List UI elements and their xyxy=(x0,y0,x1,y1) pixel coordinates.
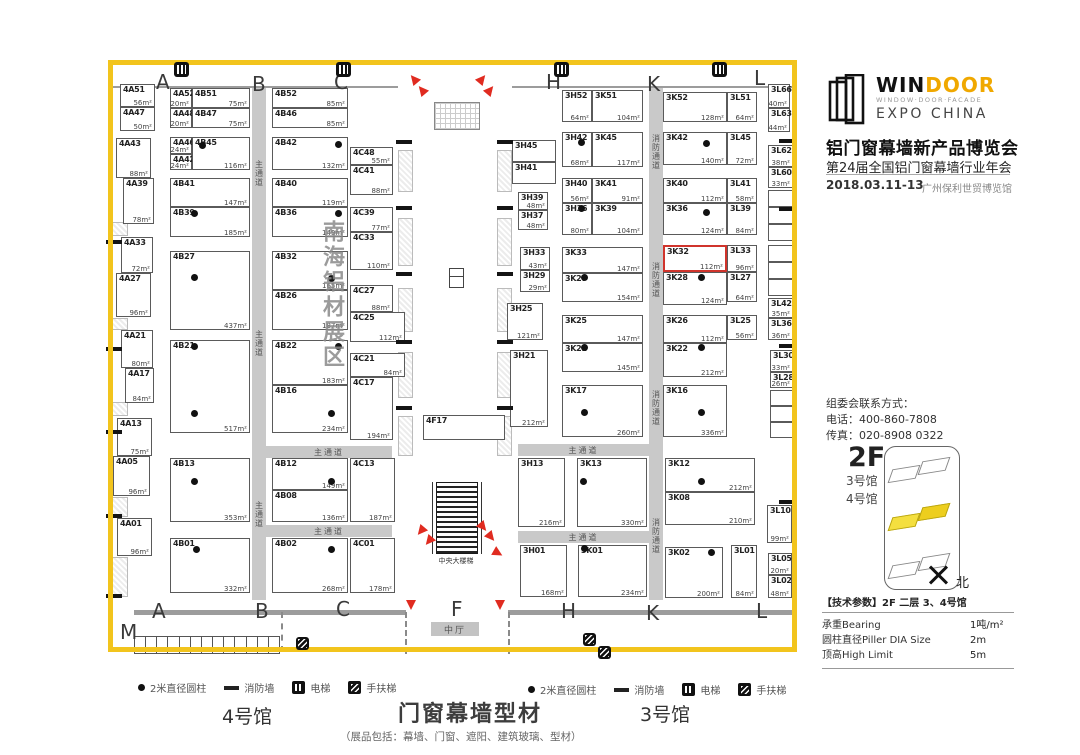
booth-4F17[interactable]: 4F17 xyxy=(423,415,505,440)
booth-area-label: 56m² xyxy=(735,332,754,340)
booth-3H21[interactable]: 3H21212m² xyxy=(510,350,548,427)
booth-3L02[interactable]: 3L0248m² xyxy=(768,575,792,598)
booth-id-label: 4A33 xyxy=(124,238,146,247)
column-letter-A: A xyxy=(152,599,166,623)
booth-4A43[interactable]: 4A4388m² xyxy=(116,138,151,178)
booth-id-label: 3L01 xyxy=(734,546,755,555)
escalator-icon xyxy=(296,637,309,650)
booth-area-label: 91m² xyxy=(621,195,640,203)
column-dot-icon xyxy=(328,546,335,553)
column-dot-icon xyxy=(703,140,710,147)
tech-param-name: 圆柱直径Piller DIA Size xyxy=(822,633,970,648)
small-stall[interactable] xyxy=(180,637,191,653)
booth-4B51[interactable]: 4B5175m² xyxy=(192,88,250,108)
booth-area-label: 84m² xyxy=(735,590,754,598)
booth-4C33[interactable]: 4C33110m² xyxy=(350,232,393,270)
booth-4B39[interactable]: 4B39185m² xyxy=(170,207,250,237)
booth-id-label: 4B47 xyxy=(195,109,217,118)
booth-3K52[interactable]: 3K52128m² xyxy=(663,92,727,122)
booth-4A48[interactable]: 4A4820m² xyxy=(170,108,192,128)
column-letter-L: L xyxy=(756,599,767,623)
booth-id-label: 4B16 xyxy=(275,386,297,395)
booth-area-label: 96m² xyxy=(129,309,148,317)
column-dot-icon xyxy=(191,343,198,350)
booth-3K13[interactable]: 3K13330m² xyxy=(577,458,647,527)
booth-3H01[interactable]: 3H01168m² xyxy=(520,545,567,597)
elevator-icon xyxy=(554,62,569,77)
booth-4C01[interactable]: 4C01178m² xyxy=(350,538,395,593)
legend-right: 2米直径圆柱消防墙电梯手扶梯 xyxy=(528,682,786,697)
booth-area-label: 84m² xyxy=(383,369,402,377)
booth-id-label: 3K33 xyxy=(565,248,587,257)
booth-id-label: 3L27 xyxy=(730,273,751,282)
booth-3H36[interactable]: 3H3680m² xyxy=(562,203,592,235)
booth-3L45[interactable]: 3L4572m² xyxy=(727,132,757,165)
expo-venue: 广州保利世贸博览馆 xyxy=(922,180,1012,195)
booth-area-label: 84m² xyxy=(132,395,151,403)
booth-4B26[interactable]: 4B26187m² xyxy=(272,290,348,330)
logo-tagline: WINDOW·DOOR·FACADE xyxy=(876,96,995,104)
booth-area-label: 121m² xyxy=(517,332,540,340)
booth-area-label: 104m² xyxy=(617,227,640,235)
booth-3H29[interactable]: 3H2929m² xyxy=(520,270,550,292)
small-stall[interactable] xyxy=(269,637,279,653)
service-shaft xyxy=(110,318,128,330)
booth-id-label: 4C41 xyxy=(353,166,374,175)
booth-3H42[interactable]: 3H4268m² xyxy=(562,132,592,167)
floor-hall4-label: 4号馆 xyxy=(846,490,878,507)
tech-param-row: 圆柱直径Piller DIA Size2m xyxy=(822,633,1014,648)
booth-3L41[interactable]: 3L4158m² xyxy=(727,178,757,203)
booth-3K36[interactable]: 3K36124m² xyxy=(663,203,727,235)
aisle-label: 消防通道 xyxy=(651,518,662,554)
tech-param-value: 1吨/m² xyxy=(970,618,1014,633)
booth-4A47[interactable]: 4A4750m² xyxy=(120,107,155,131)
booth-4A39[interactable]: 4A3978m² xyxy=(123,178,154,224)
booth-id-label: 3K08 xyxy=(668,493,690,502)
booth-small[interactable] xyxy=(770,390,793,406)
booth-4B12[interactable]: 4B12149m² xyxy=(272,458,348,490)
booth-area-label: 68m² xyxy=(570,159,589,167)
booth-area-label: 40m² xyxy=(768,100,787,108)
booth-id-label: 4C25 xyxy=(353,313,374,322)
booth-4A13[interactable]: 4A1375m² xyxy=(117,418,152,456)
legend-item: 电梯 xyxy=(682,682,720,697)
booth-3L63[interactable]: 3L6344m² xyxy=(768,108,790,132)
booth-3H37[interactable]: 3H3748m² xyxy=(518,210,548,230)
booth-id-label: 4B27 xyxy=(173,252,195,261)
booth-id-label: 4C13 xyxy=(353,459,374,468)
booth-4A51[interactable]: 4A5156m² xyxy=(120,84,155,107)
booth-id-label: 4B13 xyxy=(173,459,195,468)
legend-label: 手扶梯 xyxy=(366,680,396,695)
column-dot-icon xyxy=(199,142,206,149)
fire-wall-mark xyxy=(779,207,795,211)
booth-id-label: 3H29 xyxy=(523,271,545,280)
booth-area-label: 20m² xyxy=(170,120,189,128)
booth-3L33[interactable]: 3L3396m² xyxy=(727,245,757,272)
column-dot-icon xyxy=(578,205,585,212)
booth-3L42[interactable]: 3L4235m² xyxy=(768,298,793,318)
booth-area-label: 200m² xyxy=(697,590,720,598)
booth-id-label: 3L36 xyxy=(771,319,792,328)
booth-small[interactable] xyxy=(768,279,793,296)
aisle-label: 主通道 xyxy=(314,526,344,537)
column-dot-icon xyxy=(328,410,335,417)
booth-3K28[interactable]: 3K28124m² xyxy=(663,272,727,305)
booth-3K02[interactable]: 3K02200m² xyxy=(665,547,723,598)
booth-id-label: 4A21 xyxy=(124,331,146,340)
entrance-arrow-icon xyxy=(422,534,436,548)
booth-3L36[interactable]: 3L3636m² xyxy=(768,318,793,340)
booth-id-label: 4C21 xyxy=(353,354,374,363)
booth-id-label: 3L30 xyxy=(773,351,794,360)
small-stall[interactable] xyxy=(247,637,258,653)
legend-item: 手扶梯 xyxy=(348,680,396,695)
booth-area-label: 84m² xyxy=(735,227,754,235)
booth-3K01[interactable]: 3K01234m² xyxy=(578,545,647,597)
booth-4B41[interactable]: 4B41147m² xyxy=(170,178,250,207)
booth-4A42[interactable]: 4A4224m² xyxy=(170,154,192,170)
booth-3L39[interactable]: 3L3984m² xyxy=(727,203,757,235)
north-label: 北 xyxy=(956,572,969,591)
booth-id-label: 4B52 xyxy=(275,89,297,98)
booth-area-label: 64m² xyxy=(735,114,754,122)
column-letter-H: H xyxy=(561,599,576,623)
booth-4B02[interactable]: 4B02268m² xyxy=(272,538,348,593)
booth-3K17[interactable]: 3K17260m² xyxy=(562,385,643,437)
dashed-opening xyxy=(508,612,510,654)
booth-3L10[interactable]: 3L1099m² xyxy=(767,505,792,543)
booth-area-label: 58m² xyxy=(735,195,754,203)
booth-4B47[interactable]: 4B4775m² xyxy=(192,108,250,128)
small-stall[interactable] xyxy=(168,637,179,653)
booth-area-label: 48m² xyxy=(526,222,545,230)
floor-tile-highlighted xyxy=(918,503,951,521)
tech-param-row: 顶高High Limit5m xyxy=(822,648,1014,663)
booth-small[interactable] xyxy=(768,245,793,262)
booth-4C17[interactable]: 4C17194m² xyxy=(350,377,393,440)
hall3-name: 3号馆 xyxy=(640,700,690,727)
booth-id-label: 4B12 xyxy=(275,459,297,468)
floor-hall3-label: 3号馆 xyxy=(846,472,878,489)
service-shaft xyxy=(398,416,413,456)
booth-3K25[interactable]: 3K25147m² xyxy=(562,315,643,343)
column-dot-icon xyxy=(703,209,710,216)
column-dot-icon xyxy=(328,275,335,282)
booth-id-label: 3H45 xyxy=(515,141,537,150)
booth-area-label: 55m² xyxy=(371,157,390,165)
booth-id-label: 4B42 xyxy=(275,138,297,147)
booth-4C48[interactable]: 4C4855m² xyxy=(350,147,393,165)
booth-id-label: 4B26 xyxy=(275,291,297,300)
booth-area-label: 187m² xyxy=(369,514,392,522)
booth-id-label: 3L66 xyxy=(771,85,792,94)
booth-id-label: 3K52 xyxy=(666,93,688,102)
booth-area-label: 48m² xyxy=(770,590,789,598)
fire-wall-mark xyxy=(497,140,513,144)
booth-area-label: 77m² xyxy=(371,224,390,232)
booth-3L62[interactable]: 3L6238m² xyxy=(768,145,793,167)
column-dot-icon xyxy=(581,274,588,281)
booth-area-label: 80m² xyxy=(131,360,150,368)
small-stall[interactable] xyxy=(224,637,235,653)
booth-4A52[interactable]: 4A5220m² xyxy=(170,88,192,108)
booth-area-label: 185m² xyxy=(224,229,247,237)
booth-area-label: 147m² xyxy=(617,335,640,343)
booth-4B01[interactable]: 4B01332m² xyxy=(170,538,250,593)
column-dot-icon xyxy=(698,409,705,416)
aisle-label: 主通道 xyxy=(569,532,599,543)
booth-3K42[interactable]: 3K42140m² xyxy=(663,132,727,165)
booth-id-label: 3H01 xyxy=(523,546,545,555)
small-stall[interactable] xyxy=(202,637,213,653)
booth-4C21[interactable]: 4C2184m² xyxy=(350,353,405,377)
small-stall[interactable] xyxy=(191,637,202,653)
service-shaft xyxy=(110,402,128,416)
fire-wall-mark xyxy=(497,272,513,276)
booth-3H13[interactable]: 3H13216m² xyxy=(518,458,565,527)
entrance-arrow-icon xyxy=(484,530,498,544)
booth-id-label: 3L39 xyxy=(730,204,751,213)
booth-area-label: 29m² xyxy=(528,284,547,292)
booth-3L27[interactable]: 3L2764m² xyxy=(727,272,757,302)
elevator-icon xyxy=(174,62,189,77)
booth-3H52[interactable]: 3H5264m² xyxy=(562,90,592,122)
booth-area-label: 112m² xyxy=(701,195,724,203)
booth-4A33[interactable]: 4A3372m² xyxy=(121,237,153,273)
booth-id-label: 4B01 xyxy=(173,539,195,548)
booth-4A27[interactable]: 4A2796m² xyxy=(116,273,151,317)
booth-area-label: 212m² xyxy=(729,484,752,492)
booth-id-label: 4B40 xyxy=(275,179,297,188)
dashed-opening xyxy=(405,612,407,654)
aisle-label: 主通道 xyxy=(254,501,265,528)
booth-3K39[interactable]: 3K39104m² xyxy=(592,203,643,235)
booth-3L25[interactable]: 3L2556m² xyxy=(727,315,757,340)
booth-id-label: 4A47 xyxy=(123,108,145,117)
booth-3L05[interactable]: 3L0520m² xyxy=(768,553,792,575)
booth-3K32[interactable]: 3K32112m² xyxy=(663,245,727,272)
booth-id-label: 4B22 xyxy=(275,341,297,350)
booth-area-label: 517m² xyxy=(224,425,247,433)
legend-label: 电梯 xyxy=(310,680,330,695)
column-letter-F: F xyxy=(451,597,463,621)
booth-area-label: 75m² xyxy=(228,120,247,128)
booth-4B40[interactable]: 4B40119m² xyxy=(272,178,348,207)
fire-wall-mark xyxy=(106,430,122,434)
expo-logo: WINDOOR WINDOW·DOOR·FACADE EXPO CHINA xyxy=(828,74,995,126)
booth-area-label: 43m² xyxy=(528,262,547,270)
booth-area-label: 99m² xyxy=(770,535,789,543)
booth-id-label: 3H39 xyxy=(521,193,543,202)
fire-wall-mark xyxy=(779,344,795,348)
booth-id-label: 3L62 xyxy=(771,146,792,155)
fire-wall-mark xyxy=(779,139,795,143)
tech-param-row: 承重Bearing1吨/m² xyxy=(822,618,1014,633)
booth-3H41[interactable]: 3H41 xyxy=(512,162,556,184)
booth-id-label: 3L02 xyxy=(771,576,792,585)
booth-3K22[interactable]: 3K22212m² xyxy=(663,343,727,377)
booth-id-label: 4A43 xyxy=(119,139,141,148)
booth-3L66[interactable]: 3L6640m² xyxy=(768,84,790,108)
booth-3K26[interactable]: 3K26112m² xyxy=(663,315,727,343)
booth-3K12[interactable]: 3K12212m² xyxy=(665,458,755,492)
small-stall-row xyxy=(134,636,280,654)
main-aisle: 主通道 xyxy=(518,531,649,543)
booth-4A01[interactable]: 4A0196m² xyxy=(117,518,152,556)
booth-small[interactable] xyxy=(770,406,793,422)
booth-3L60[interactable]: 3L6033m² xyxy=(768,167,793,188)
booth-id-label: 4A01 xyxy=(120,519,142,528)
booth-id-label: 3L51 xyxy=(730,93,751,102)
booth-3H39[interactable]: 3H3948m² xyxy=(518,192,548,210)
booth-4A05[interactable]: 4A0596m² xyxy=(113,456,150,496)
booth-4B46[interactable]: 4B4685m² xyxy=(272,108,348,128)
booth-3H40[interactable]: 3H4056m² xyxy=(562,178,592,203)
column-dot-icon xyxy=(335,210,342,217)
booth-3H25[interactable]: 3H25121m² xyxy=(507,303,543,340)
booth-3K45[interactable]: 3K45117m² xyxy=(592,132,643,167)
legend-label: 电梯 xyxy=(700,682,720,697)
booth-id-label: 4A27 xyxy=(119,274,141,283)
booth-4A46[interactable]: 4A4624m² xyxy=(170,137,192,154)
booth-id-label: 3H33 xyxy=(523,248,545,257)
booth-small[interactable] xyxy=(768,224,793,241)
column-dot-icon xyxy=(191,274,198,281)
column-letter-B: B xyxy=(252,72,266,96)
column-dot-icon xyxy=(698,478,705,485)
booth-small[interactable] xyxy=(768,262,793,279)
small-stall[interactable] xyxy=(146,637,157,653)
booth-id-label: 3K42 xyxy=(666,133,688,142)
booth-4A21[interactable]: 4A2180m² xyxy=(121,330,153,368)
booth-4A17[interactable]: 4A1784m² xyxy=(125,368,154,403)
fire-wall-mark xyxy=(497,406,513,410)
booth-id-label: 4A05 xyxy=(116,457,138,466)
tech-param-value: 2m xyxy=(970,633,1014,648)
booth-4B16[interactable]: 4B16234m² xyxy=(272,385,348,433)
fire-wall-icon xyxy=(614,688,629,692)
elevator-icon xyxy=(292,681,305,694)
hall-center-exhibits: （展品包括：幕墙、门窗、遮阳、建筑玻璃、型材） xyxy=(340,729,582,744)
booth-4C27[interactable]: 4C2788m² xyxy=(350,285,393,312)
small-stall[interactable] xyxy=(235,637,246,653)
booth-id-label: 4B02 xyxy=(275,539,297,548)
booth-area-label: 78m² xyxy=(132,216,151,224)
legend-item: 2米直径圆柱 xyxy=(138,680,206,695)
logo-win: WIN xyxy=(876,73,925,97)
column-dot-icon xyxy=(191,210,198,217)
atrium-facility-icon xyxy=(449,268,464,288)
booth-area-label: 140m² xyxy=(701,157,724,165)
booth-area-label: 332m² xyxy=(224,585,247,593)
booth-3K21[interactable]: 3K21145m² xyxy=(562,343,643,372)
booth-small[interactable] xyxy=(770,422,793,438)
booth-3K08[interactable]: 3K08210m² xyxy=(665,492,755,525)
booth-3K41[interactable]: 3K4191m² xyxy=(592,178,643,203)
expo-title: 铝门窗幕墙新产品博览会 xyxy=(826,134,1019,159)
logo-door: DOOR xyxy=(925,73,995,97)
booth-area-label: 194m² xyxy=(367,432,390,440)
small-stall[interactable] xyxy=(157,637,168,653)
booth-small[interactable] xyxy=(768,190,793,207)
booth-3K33[interactable]: 3K33147m² xyxy=(562,247,643,273)
aisle-label: 消防通道 xyxy=(651,134,662,170)
wall-segment xyxy=(134,610,406,615)
column-dot-icon xyxy=(580,478,587,485)
booth-id-label: 3H37 xyxy=(521,211,543,220)
booth-id-label: 3L05 xyxy=(771,554,792,563)
booth-4C25[interactable]: 4C25112m² xyxy=(350,312,405,342)
booth-area-label: 88m² xyxy=(371,304,390,312)
booth-area-label: 75m² xyxy=(130,448,149,456)
booth-4C39[interactable]: 4C3977m² xyxy=(350,207,393,232)
contact-heading: 组委会联系方式： xyxy=(826,396,943,412)
booth-3K16[interactable]: 3K16336m² xyxy=(663,385,727,437)
booth-4B32[interactable]: 4B32165m² xyxy=(272,251,348,290)
booth-area-label: 96m² xyxy=(128,488,147,496)
booth-4B08[interactable]: 4B08136m² xyxy=(272,490,348,522)
booth-4C41[interactable]: 4C4188m² xyxy=(350,165,393,195)
fire-wall-mark xyxy=(106,347,122,351)
booth-id-label: 3K45 xyxy=(595,133,617,142)
booth-3H33[interactable]: 3H3343m² xyxy=(520,247,550,270)
booth-4B27[interactable]: 4B27437m² xyxy=(170,251,250,330)
booth-area-label: 48m² xyxy=(526,202,545,210)
booth-id-label: 3L60 xyxy=(771,168,792,177)
booth-id-label: 4C48 xyxy=(353,148,374,157)
booth-id-label: 3K12 xyxy=(668,459,690,468)
divider-line xyxy=(826,174,1010,175)
booth-3K27[interactable]: 3K27154m² xyxy=(562,273,643,302)
small-stall[interactable] xyxy=(213,637,224,653)
contact-block: 组委会联系方式： 电话：400-860-7808 传真：020-8908 032… xyxy=(826,396,943,444)
booth-3L01[interactable]: 3L0184m² xyxy=(731,545,757,598)
booth-3K51[interactable]: 3K51104m² xyxy=(592,90,643,122)
booth-id-label: 3K17 xyxy=(565,386,587,395)
window-frame-icon xyxy=(828,74,866,126)
legend-label: 消防墙 xyxy=(244,680,274,695)
booth-3L51[interactable]: 3L5164m² xyxy=(727,92,757,122)
booth-area-label: 165m² xyxy=(322,282,345,290)
column-letter-A: A xyxy=(156,70,170,94)
booth-3L30[interactable]: 3L3033m² xyxy=(770,350,793,372)
north-compass-icon xyxy=(926,564,952,586)
tech-params-table: 【技术参数】2F 二层 3、4号馆 承重Bearing1吨/m²圆柱直径Pill… xyxy=(822,594,1014,669)
legend-item: 手扶梯 xyxy=(738,682,786,697)
booth-3H45[interactable]: 3H45 xyxy=(512,140,556,162)
booth-area-label: 116m² xyxy=(224,162,247,170)
booth-id-label: 3K36 xyxy=(666,204,688,213)
column-letter-M: M xyxy=(120,620,137,644)
column-letter-K: K xyxy=(646,601,659,625)
booth-area-label: 437m² xyxy=(224,322,247,330)
booth-4B21[interactable]: 4B21517m² xyxy=(170,340,250,433)
legend-item: 消防墙 xyxy=(614,682,664,697)
booth-id-label: 4A17 xyxy=(128,369,150,378)
tech-params-heading: 【技术参数】2F 二层 3、4号馆 xyxy=(822,594,1014,613)
fire-wall-mark xyxy=(396,406,412,410)
booth-4C13[interactable]: 4C13187m² xyxy=(350,458,395,522)
booth-3L28[interactable]: 3L2826m² xyxy=(770,372,793,388)
small-stall[interactable] xyxy=(258,637,269,653)
escalator-icon xyxy=(598,646,611,659)
booth-3K40[interactable]: 3K40112m² xyxy=(663,178,727,203)
entrance-arrow-icon xyxy=(483,83,497,97)
booth-id-label: 4C01 xyxy=(353,539,374,548)
booth-4B13[interactable]: 4B13353m² xyxy=(170,458,250,522)
